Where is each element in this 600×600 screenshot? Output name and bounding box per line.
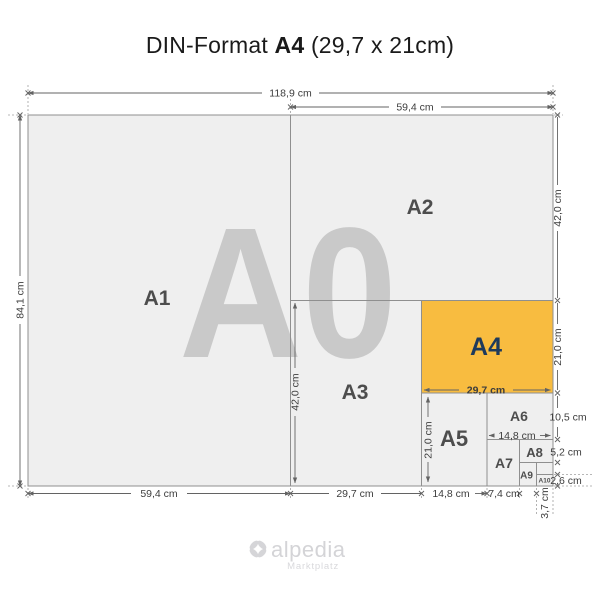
dim-a4-height: 21,0 cm	[552, 303, 564, 390]
dim-label-a6-width: 14,8 cm	[498, 430, 536, 442]
label-a4: A4	[470, 333, 502, 361]
label-a3: A3	[342, 381, 369, 404]
dim-label-a0-height: 84,1 cm	[14, 281, 26, 319]
dim-label-a7-width: 7,4 cm	[488, 488, 520, 500]
dim-label-a6-height: 10,5 cm	[549, 412, 587, 424]
dim-a7-width: 7,4 cm	[488, 488, 520, 500]
label-a6: A6	[510, 408, 528, 424]
dim-a2-height: 42,0 cm	[552, 117, 564, 298]
dim-a5-width: 14,8 cm	[432, 488, 487, 500]
dim-a10-height: 2,6 cm	[550, 475, 582, 487]
label-a8: A8	[526, 445, 543, 460]
dim-label-a4-width: 29,7 cm	[467, 385, 506, 397]
dim-a2-width: 59,4 cm	[291, 102, 554, 114]
dim-label-a4-height: 21,0 cm	[552, 328, 564, 366]
dim-a1-width: 59,4 cm	[28, 488, 291, 500]
logo: alpedia Marktplatz	[248, 537, 346, 572]
label-a7: A7	[495, 455, 513, 471]
din-format-diagram: A0	[0, 0, 600, 600]
dim-label-a9-width: 3,7 cm	[539, 487, 551, 519]
dim-label-a8-height: 5,2 cm	[550, 447, 582, 459]
dim-label-a3-width: 29,7 cm	[336, 488, 374, 500]
dim-a0-height: 84,1 cm	[14, 115, 26, 486]
dim-a9-width: 3,7 cm	[539, 487, 551, 519]
logo-clover-icon	[248, 539, 268, 559]
dim-label-a1-width: 59,4 cm	[140, 488, 178, 500]
dim-label-a10-height: 2,6 cm	[550, 475, 582, 487]
dim-label-a2-width: 59,4 cm	[396, 102, 434, 114]
dim-label-a5-width: 14,8 cm	[432, 488, 470, 500]
label-a5: A5	[440, 426, 468, 451]
label-a1: A1	[144, 287, 171, 310]
dim-a6-height: 10,5 cm	[549, 396, 587, 437]
dim-a0-width: 118,9 cm	[28, 88, 553, 100]
dim-label-a2-height: 42,0 cm	[552, 189, 564, 227]
dim-label-a0-width: 118,9 cm	[269, 88, 312, 100]
dim-a3-width: 29,7 cm	[291, 488, 422, 500]
label-a10: A10	[539, 478, 551, 485]
dim-label-a5-height: 21,0 cm	[422, 421, 434, 459]
logo-name: alpedia	[271, 537, 346, 562]
dim-label-a3-height: 42,0 cm	[289, 373, 301, 411]
dim-a8-height: 5,2 cm	[550, 447, 582, 459]
label-a9: A9	[520, 471, 533, 482]
logo-tagline: Marktplatz	[287, 561, 339, 572]
label-a2: A2	[407, 196, 434, 219]
